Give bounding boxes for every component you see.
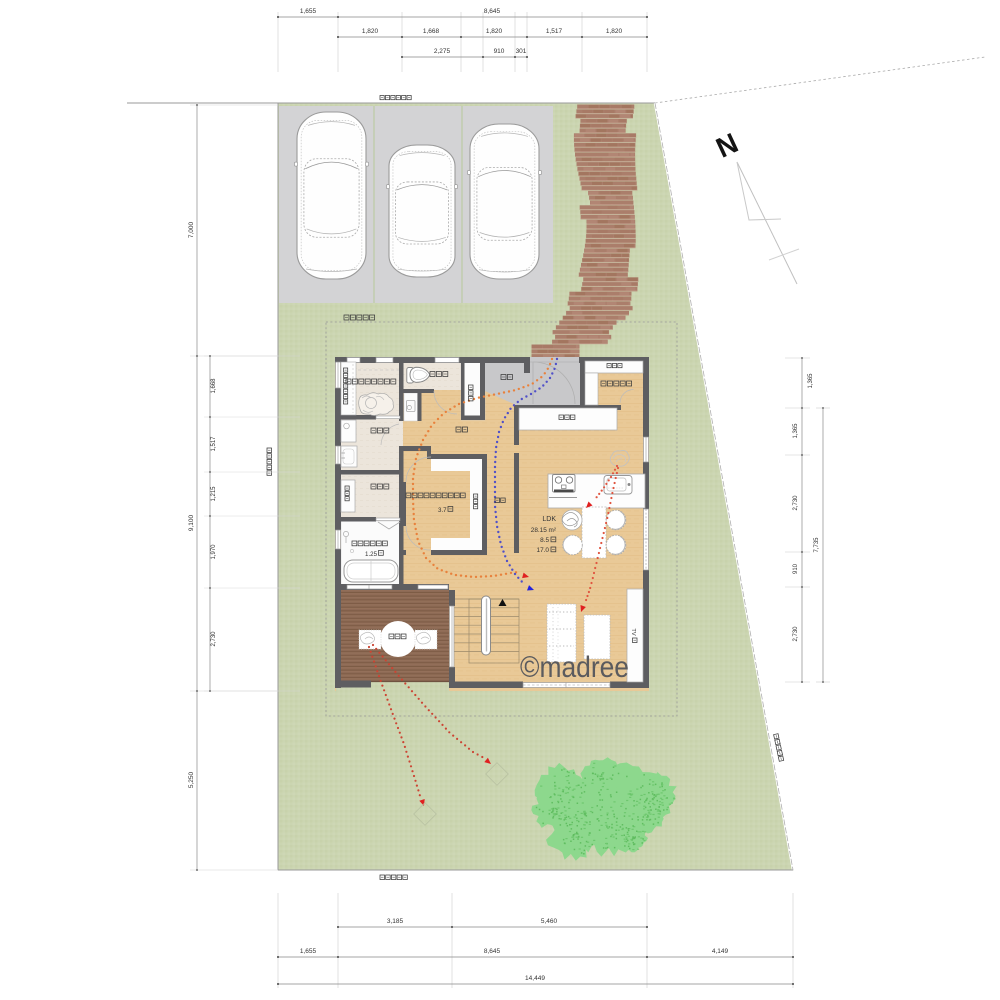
svg-text:2,730: 2,730 bbox=[793, 495, 799, 511]
svg-text:1,517: 1,517 bbox=[546, 28, 563, 35]
svg-text:1,820: 1,820 bbox=[362, 28, 379, 35]
svg-text:2,275: 2,275 bbox=[434, 48, 451, 55]
svg-text:4,149: 4,149 bbox=[712, 948, 729, 955]
svg-text:7,735: 7,735 bbox=[814, 537, 820, 553]
svg-text:3,185: 3,185 bbox=[387, 918, 404, 925]
svg-text:301: 301 bbox=[516, 48, 527, 55]
svg-text:8,645: 8,645 bbox=[484, 948, 501, 955]
svg-text:1,820: 1,820 bbox=[606, 28, 623, 35]
svg-text:1,517: 1,517 bbox=[211, 436, 217, 452]
svg-text:5,460: 5,460 bbox=[541, 918, 558, 925]
svg-text:1,668: 1,668 bbox=[211, 378, 217, 394]
svg-text:2,730: 2,730 bbox=[211, 631, 217, 647]
svg-text:3.7: 3.7 bbox=[438, 507, 447, 514]
svg-text:5,250: 5,250 bbox=[188, 771, 195, 788]
svg-text:1,668: 1,668 bbox=[423, 28, 440, 35]
svg-text:2,730: 2,730 bbox=[793, 626, 799, 642]
svg-text:910: 910 bbox=[494, 48, 505, 55]
svg-text:LDK: LDK bbox=[542, 516, 556, 523]
svg-text:1,820: 1,820 bbox=[486, 28, 503, 35]
svg-text:8,645: 8,645 bbox=[484, 8, 501, 15]
svg-text:1,655: 1,655 bbox=[300, 948, 317, 955]
svg-text:8.5: 8.5 bbox=[540, 537, 549, 544]
svg-text:1,215: 1,215 bbox=[211, 486, 217, 502]
svg-text:1,365: 1,365 bbox=[808, 373, 814, 389]
svg-text:TV: TV bbox=[630, 628, 636, 635]
svg-text:910: 910 bbox=[793, 563, 799, 574]
svg-text:17.0: 17.0 bbox=[537, 547, 550, 554]
svg-text:7,000: 7,000 bbox=[188, 221, 195, 238]
svg-text:28.15 m²: 28.15 m² bbox=[531, 527, 556, 534]
svg-text:9,100: 9,100 bbox=[188, 514, 195, 531]
svg-text:1,970: 1,970 bbox=[211, 544, 217, 560]
svg-text:©madree: ©madree bbox=[520, 651, 629, 684]
svg-text:1,655: 1,655 bbox=[300, 8, 317, 15]
svg-text:1,365: 1,365 bbox=[793, 423, 799, 439]
svg-text:14,449: 14,449 bbox=[525, 975, 545, 982]
svg-text:1.25: 1.25 bbox=[365, 551, 378, 558]
